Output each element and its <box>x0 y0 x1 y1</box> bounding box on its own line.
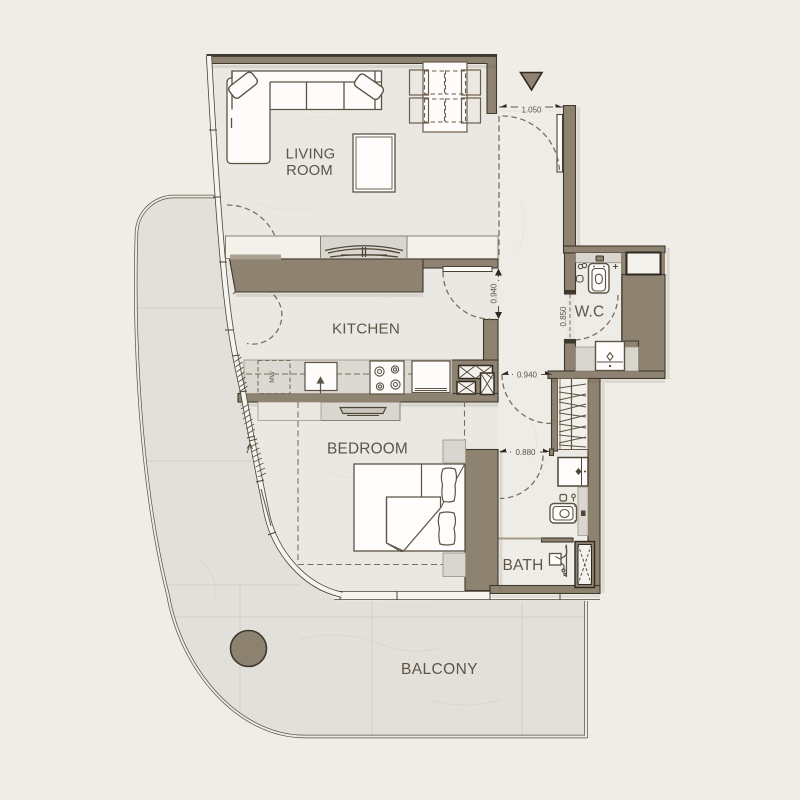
svg-text:BEDROOM: BEDROOM <box>327 441 408 458</box>
svg-text:W.C: W.C <box>575 304 605 321</box>
svg-text:ROOM: ROOM <box>286 163 333 179</box>
svg-text:0.940: 0.940 <box>490 283 499 304</box>
svg-text:BALCONY: BALCONY <box>401 661 478 678</box>
svg-text:KITCHEN: KITCHEN <box>332 321 400 338</box>
svg-text:MW: MW <box>269 370 276 382</box>
svg-text:0.940: 0.940 <box>517 371 538 380</box>
svg-text:LIVING: LIVING <box>286 147 336 163</box>
svg-text:0.880: 0.880 <box>515 448 536 457</box>
svg-text:0.850: 0.850 <box>559 306 568 327</box>
svg-text:1.050: 1.050 <box>521 106 542 115</box>
svg-text:BATH: BATH <box>503 557 544 574</box>
